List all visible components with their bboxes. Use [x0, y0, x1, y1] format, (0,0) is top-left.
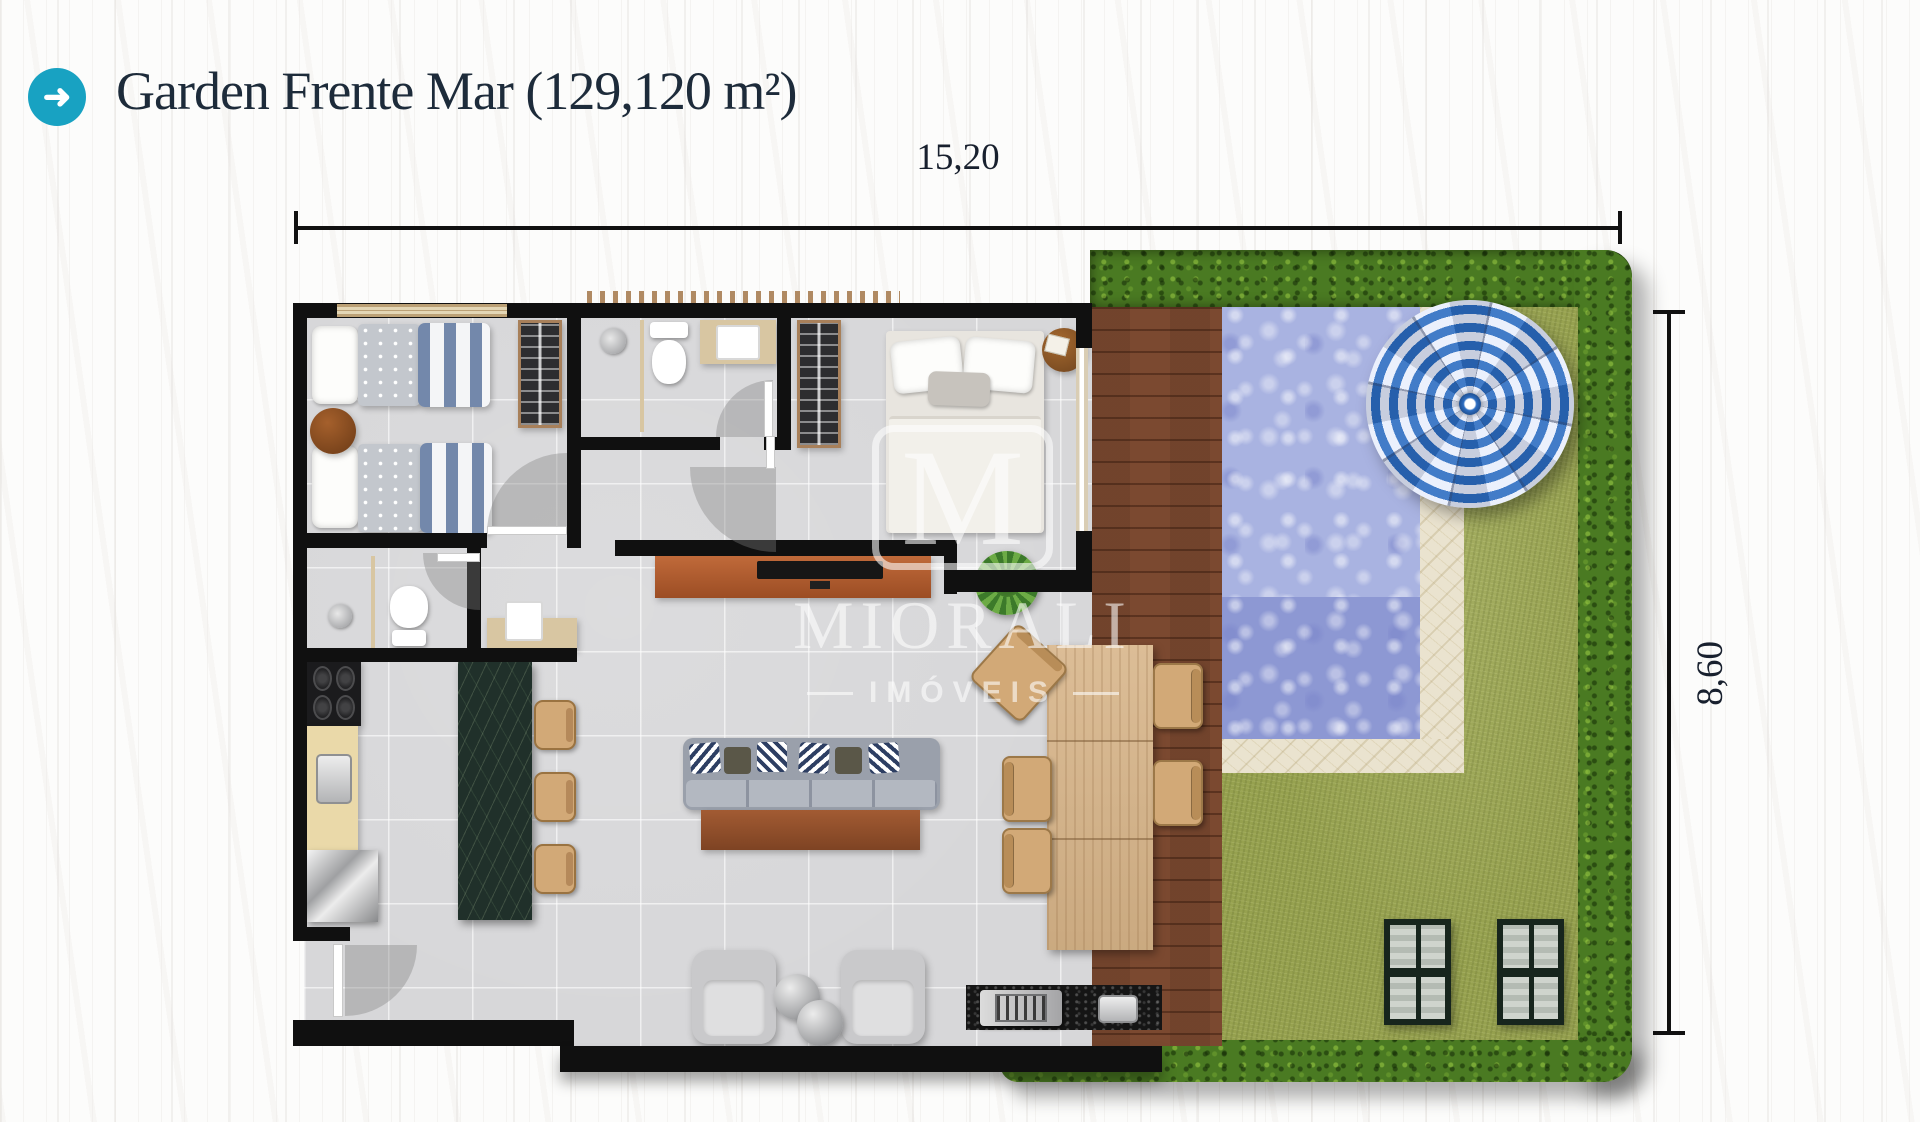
sofa-pillow-chevron	[868, 742, 900, 774]
sofa-pillow-chevron	[798, 742, 830, 774]
brand-dash-right	[1073, 692, 1119, 695]
dimension-height-line	[1667, 312, 1671, 1035]
pool-deep	[1222, 597, 1420, 739]
bathroom2-shower-glass	[371, 556, 375, 650]
bbq-sink	[1098, 995, 1138, 1023]
lavabo-sink	[505, 601, 543, 641]
bed2-duvet	[420, 443, 492, 533]
armchair-right	[841, 950, 925, 1044]
door-leaf-bathroom2	[437, 553, 480, 562]
bathroom1-toilet-tank	[650, 322, 688, 338]
island-stool-2	[534, 772, 576, 822]
island-stool-1	[534, 700, 576, 750]
wall-bathroom1-bottom	[581, 437, 720, 450]
dimension-width-line	[296, 226, 1620, 230]
arrow-glyph: ➜	[43, 77, 72, 117]
bed1-blanket	[358, 324, 420, 406]
sofa-back-console	[701, 810, 920, 850]
bathroom1-toilet-bowl	[652, 340, 686, 384]
side-table-2	[797, 1000, 843, 1046]
hedge-top	[1090, 250, 1632, 308]
bed2-pillow	[312, 446, 358, 528]
door-leaf-bathroom1	[764, 381, 773, 437]
kitchen-sink	[316, 754, 352, 804]
table-seam	[1047, 838, 1153, 840]
bathroom1-shower-glass	[640, 320, 644, 432]
master-sliding-door	[1076, 346, 1088, 536]
sun-lounger-left	[1384, 919, 1451, 1025]
bathroom2-toilet-bowl	[390, 586, 428, 628]
brand-subtitle-row: IMÓVEIS	[763, 676, 1163, 710]
dining-chair-left-1	[1002, 756, 1052, 822]
bathroom2-shower-head	[328, 604, 352, 628]
wall-bottom-left	[293, 1020, 574, 1046]
sofa-pillow-chevron	[757, 742, 787, 772]
door-leaf-hall	[766, 436, 775, 469]
kitchen-fridge	[307, 850, 378, 922]
sofa-seats	[686, 780, 937, 807]
dimension-width-tick-left	[294, 211, 298, 244]
bathroom1-shower-head	[600, 328, 626, 354]
burner	[336, 695, 355, 720]
dimension-width-tick-right	[1618, 211, 1622, 244]
dimension-height-label-wrap: 8,60	[1678, 312, 1742, 1035]
bed1-duvet	[418, 323, 490, 407]
floorplan-page: ➜ Garden Frente Mar (129,120 m²) 15,20 8…	[0, 0, 1920, 1122]
burner	[336, 666, 355, 691]
tv	[757, 561, 883, 579]
arrow-right-icon: ➜	[28, 68, 86, 126]
wall-bedroom1-right	[567, 303, 581, 548]
bed2-blanket	[358, 444, 422, 532]
island-stool-3	[534, 844, 576, 894]
burner	[313, 666, 332, 691]
wall-bathroom2-bottom	[293, 648, 577, 662]
sofa-pillow-olive	[724, 747, 751, 774]
bed1-pillow	[312, 326, 358, 404]
bathroom2-toilet-tank	[392, 630, 426, 646]
dining-chair-left-2	[1002, 828, 1052, 894]
burner	[313, 695, 332, 720]
wall-left	[293, 303, 307, 941]
pergola-slats	[587, 291, 900, 303]
bedroom1-window-frame	[337, 304, 507, 317]
dining-chair-right-2	[1153, 760, 1203, 826]
sun-lounger-right	[1497, 919, 1564, 1025]
dimension-width-label: 15,20	[296, 136, 1620, 179]
pool-border-bottom	[1222, 739, 1464, 773]
hedge-right	[1574, 250, 1632, 1082]
brand-logo-letter: M	[901, 429, 1024, 567]
wall-master-right-top	[1076, 303, 1092, 348]
armchair-left	[692, 950, 776, 1044]
door-leaf-bedroom1	[487, 526, 567, 535]
wall-master-right-bottom	[1076, 531, 1092, 592]
bbq-grill	[980, 990, 1062, 1026]
sofa-pillow-olive	[835, 747, 862, 774]
bathroom1-sink	[716, 325, 760, 360]
table-seam	[1047, 740, 1153, 742]
wall-master-left	[777, 303, 791, 450]
page-title: Garden Frente Mar (129,120 m²)	[116, 60, 797, 122]
brand-dash-left	[807, 692, 853, 695]
beach-umbrella	[1366, 300, 1574, 508]
brand-name: MIORALI	[763, 586, 1163, 665]
master-wardrobe	[797, 320, 841, 448]
bedroom1-round-table	[310, 408, 356, 454]
master-pillow-accent	[927, 371, 990, 407]
brand-subtitle: IMÓVEIS	[869, 676, 1057, 710]
sofa-pillow-chevron	[689, 742, 722, 775]
wall-entry-stub	[293, 927, 350, 941]
dimension-height-label: 8,60	[1689, 641, 1732, 706]
door-leaf-entry	[333, 944, 343, 1017]
kitchen-cooktop	[307, 660, 361, 726]
bedroom1-wardrobe	[518, 320, 562, 428]
wall-bottom-main	[560, 1046, 1162, 1072]
wall-bedroom1-bottom	[293, 533, 487, 548]
kitchen-island	[458, 662, 532, 920]
brand-logo: M	[872, 425, 1053, 570]
